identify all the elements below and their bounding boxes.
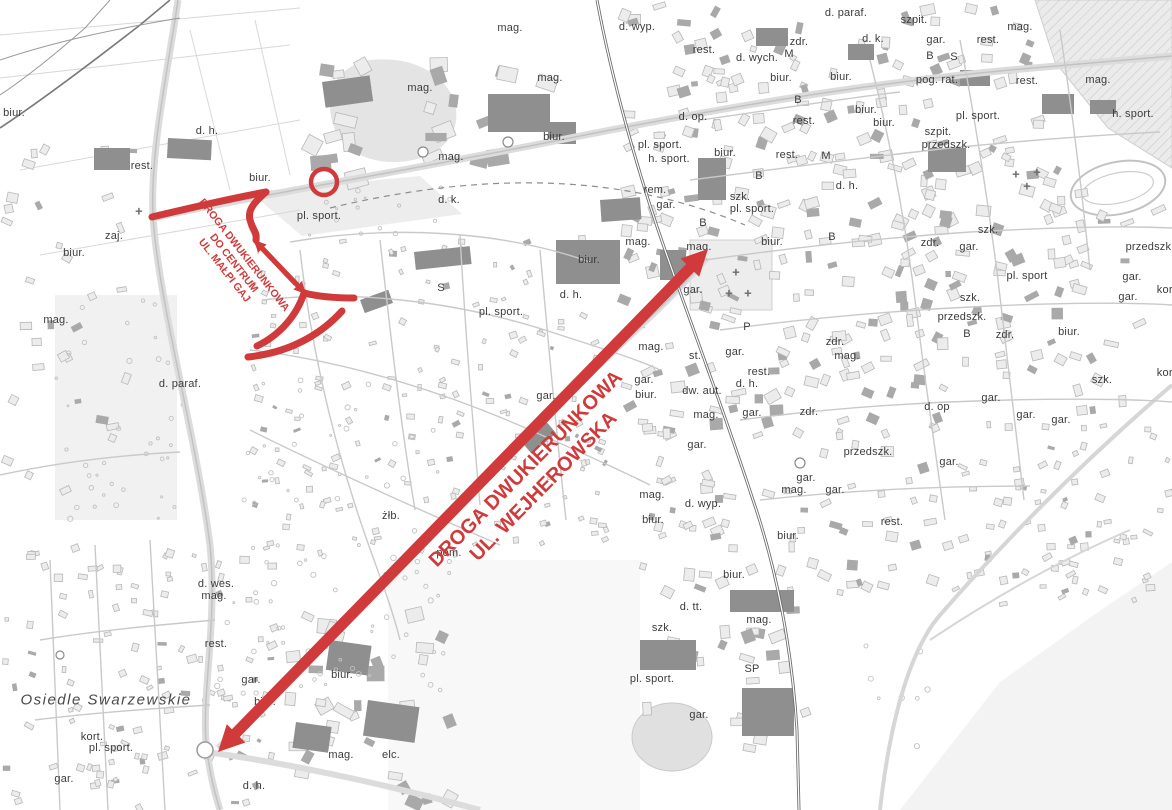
route-start-circle: [311, 169, 337, 195]
map-canvas[interactable]: d. h.rest.biur.zaj.biur.biur.mag.d. para…: [0, 0, 1172, 810]
main-route-arrow: [218, 249, 708, 752]
